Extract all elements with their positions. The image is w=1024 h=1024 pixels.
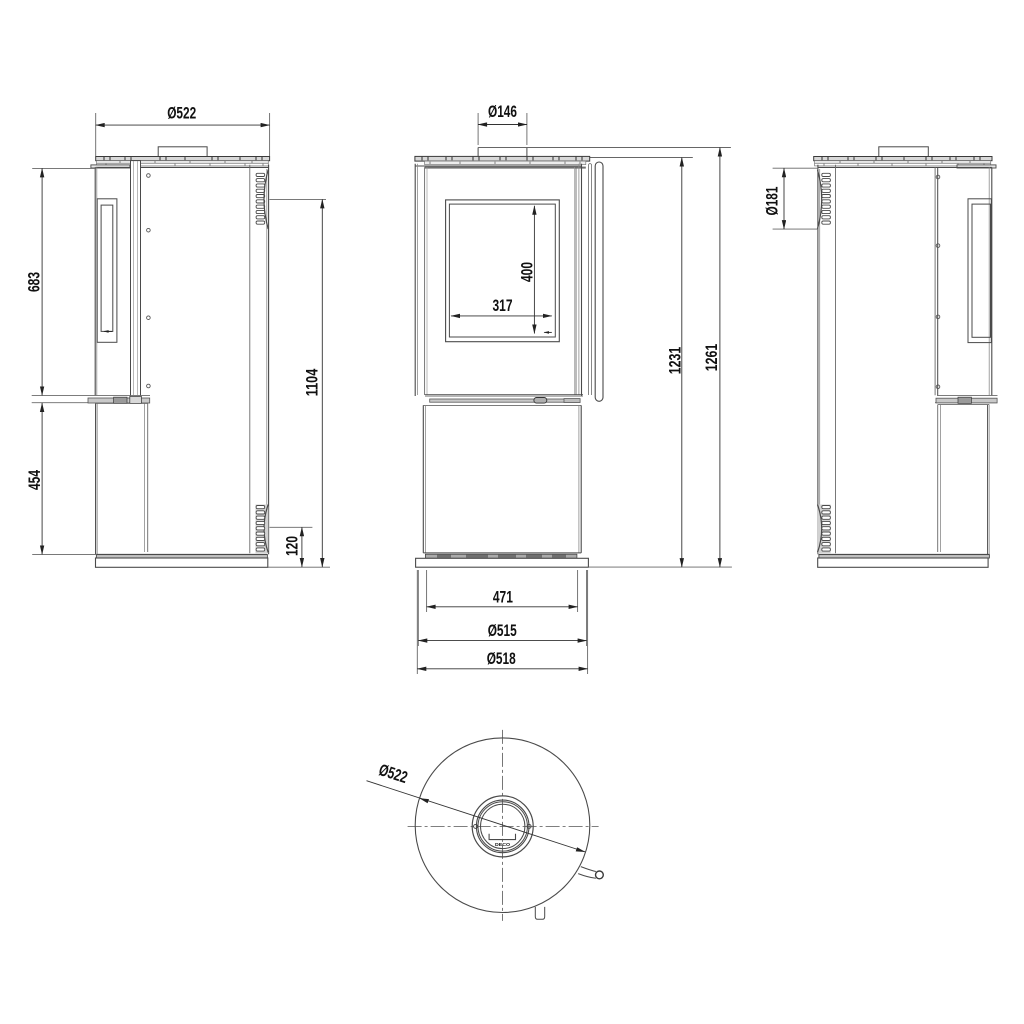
svg-text:Ø522: Ø522 bbox=[167, 105, 196, 123]
svg-text:Ø515: Ø515 bbox=[488, 622, 517, 640]
svg-text:Ø181: Ø181 bbox=[764, 187, 782, 216]
svg-text:Ø518: Ø518 bbox=[487, 650, 516, 668]
svg-text:DECO: DECO bbox=[495, 842, 511, 847]
svg-text:1104: 1104 bbox=[304, 368, 322, 396]
svg-text:400: 400 bbox=[518, 262, 536, 282]
svg-text:683: 683 bbox=[26, 272, 44, 292]
svg-text:Ø522: Ø522 bbox=[376, 761, 409, 787]
svg-text:454: 454 bbox=[26, 469, 44, 490]
svg-text:1231: 1231 bbox=[666, 347, 684, 375]
svg-text:1261: 1261 bbox=[703, 344, 721, 372]
svg-text:Ø146: Ø146 bbox=[488, 103, 517, 121]
svg-text:317: 317 bbox=[493, 297, 513, 315]
svg-text:120: 120 bbox=[283, 536, 301, 556]
svg-text:471: 471 bbox=[493, 589, 513, 607]
